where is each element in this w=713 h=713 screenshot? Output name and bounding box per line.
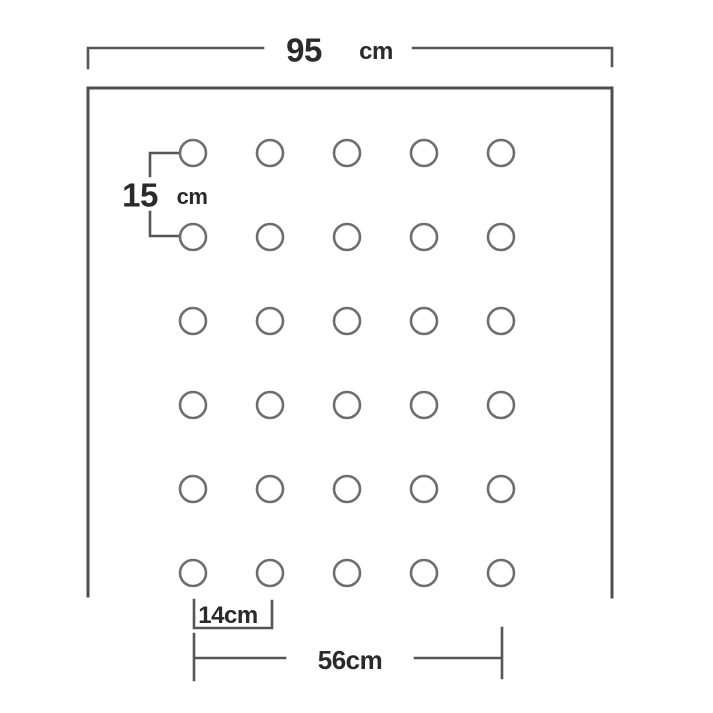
row-spacing-value: 15 [122,179,158,212]
hole [334,392,360,418]
hole [257,560,283,586]
hole [334,224,360,250]
hole [411,476,437,502]
row-span-label: 56cm [318,647,383,673]
hole [257,224,283,250]
hole [411,140,437,166]
hole [411,560,437,586]
hole [411,392,437,418]
hole [411,308,437,334]
hole [488,560,514,586]
hole [488,476,514,502]
hole [334,140,360,166]
hole [488,140,514,166]
hole [180,476,206,502]
hole [488,392,514,418]
width-dimension-line [88,48,612,68]
hole [257,140,283,166]
hole [334,476,360,502]
hole [180,224,206,250]
dimension-diagram: 95 cm 15 cm 14cm 56cm [0,0,713,713]
hole [334,308,360,334]
hole [180,560,206,586]
hole [180,140,206,166]
hole [257,392,283,418]
row-spacing-unit: cm [177,186,208,208]
width-dimension-unit: cm [359,40,393,64]
hole-grid [180,140,514,586]
hole [488,224,514,250]
hole [411,224,437,250]
hole-spacing-label: 14cm [198,604,257,628]
hole [180,392,206,418]
width-dimension-value: 95 [286,34,322,67]
hole [180,308,206,334]
hole [257,476,283,502]
hole [488,308,514,334]
diagram-linework [0,0,713,713]
hole [257,308,283,334]
hole [334,560,360,586]
